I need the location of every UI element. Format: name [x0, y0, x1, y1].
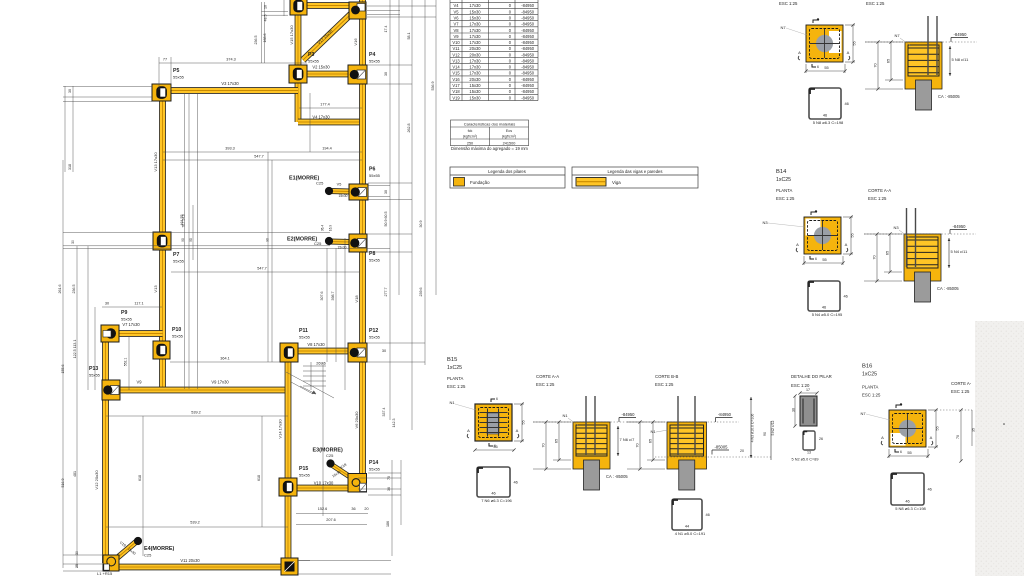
svg-text:DETALHE DO PILAR: DETALHE DO PILAR [791, 374, 832, 379]
svg-text:539.2: 539.2 [191, 411, 201, 415]
svg-text:ESC 1:25: ESC 1:25 [536, 382, 555, 387]
svg-text:261.6: 261.6 [58, 285, 62, 294]
svg-text:20: 20 [740, 449, 744, 453]
svg-text:30: 30 [71, 240, 75, 244]
svg-text:-84950: -84950 [718, 412, 732, 417]
svg-text:20x30: 20x30 [469, 77, 481, 82]
svg-text:318: 318 [68, 164, 72, 170]
svg-text:B16: B16 [862, 364, 872, 370]
svg-text:E1(MORRE): E1(MORRE) [289, 176, 319, 182]
svg-text:55: 55 [852, 41, 857, 45]
svg-text:618: 618 [138, 475, 142, 481]
svg-text:30: 30 [382, 349, 386, 353]
svg-text:-85005: -85005 [714, 445, 728, 450]
svg-text:V18: V18 [354, 295, 359, 303]
svg-text:5 N4 c/11: 5 N4 c/11 [951, 249, 969, 254]
svg-text:ESC 1:25: ESC 1:25 [447, 384, 466, 389]
svg-text:V6: V6 [453, 15, 459, 20]
svg-text:P4: P4 [369, 52, 375, 58]
svg-text:C25: C25 [314, 241, 322, 246]
svg-text:55: 55 [824, 65, 828, 70]
svg-text:17x30: 17x30 [469, 65, 481, 70]
svg-text:V7 17x30: V7 17x30 [122, 322, 140, 327]
svg-text:-84950: -84950 [521, 89, 534, 94]
svg-text:P6: P6 [369, 167, 375, 173]
svg-text:17x30: 17x30 [469, 22, 481, 27]
svg-text:A: A [847, 50, 850, 55]
svg-text:P11: P11 [299, 328, 308, 334]
svg-text:46: 46 [706, 512, 710, 517]
svg-text:P14: P14 [369, 460, 378, 466]
svg-text:15x30: 15x30 [469, 95, 481, 100]
svg-text:V16: V16 [452, 77, 460, 82]
svg-text:A: A [516, 428, 519, 433]
svg-text:5 N4 ø5.0 C=195: 5 N4 ø5.0 C=195 [812, 312, 843, 317]
svg-text:1xC25: 1xC25 [862, 372, 877, 378]
svg-text:-84950: -84950 [621, 412, 635, 417]
svg-text:1xC25: 1xC25 [776, 177, 791, 183]
svg-text:V2 15x30: V2 15x30 [312, 65, 330, 70]
svg-text:142.3: 142.3 [392, 419, 396, 428]
svg-text:90: 90 [189, 238, 193, 242]
svg-text:239.6: 239.6 [419, 288, 423, 297]
svg-text:337.4: 337.4 [382, 408, 386, 417]
svg-text:-84950: -84950 [952, 224, 966, 229]
svg-text:-84950: -84950 [521, 15, 534, 20]
svg-text:-84950: -84950 [521, 71, 534, 76]
svg-text:70: 70 [387, 476, 391, 480]
svg-text:V9 17x30: V9 17x30 [211, 380, 229, 385]
svg-text:30: 30 [384, 72, 388, 76]
svg-text:Ecs: Ecs [506, 129, 512, 133]
svg-text:V13: V13 [153, 285, 158, 293]
svg-text:36.4: 36.4 [321, 225, 325, 231]
svg-text:N7: N7 [780, 25, 786, 30]
svg-text:V11 20x30: V11 20x30 [180, 558, 200, 563]
svg-text:481: 481 [73, 471, 77, 477]
svg-text:17x30: 17x30 [469, 71, 481, 76]
svg-text:4 N1 ø5.0 C=191: 4 N1 ø5.0 C=191 [675, 531, 706, 536]
svg-text:55x55: 55x55 [299, 473, 311, 478]
svg-text:55x55: 55x55 [369, 467, 381, 472]
svg-text:539.2: 539.2 [190, 521, 200, 525]
svg-text:B14: B14 [776, 169, 787, 175]
svg-text:236.5: 236.5 [72, 285, 76, 294]
svg-text:307.6: 307.6 [320, 292, 324, 301]
svg-text:V18: V18 [452, 89, 460, 94]
svg-text:-84950: -84950 [521, 77, 534, 82]
svg-text:15x30: 15x30 [469, 9, 481, 14]
svg-text:618: 618 [257, 475, 261, 481]
svg-text:CA : -85005: CA : -85005 [937, 286, 959, 291]
svg-text:46: 46 [491, 491, 495, 496]
svg-text:48.5: 48.5 [264, 15, 268, 22]
svg-text:250: 250 [467, 141, 473, 145]
svg-text:55: 55 [907, 450, 911, 455]
svg-text:E4(MORRE): E4(MORRE) [144, 546, 174, 552]
svg-text:A: A [798, 50, 801, 55]
svg-text:269.6: 269.6 [316, 362, 326, 366]
svg-text:-84950: -84950 [521, 95, 534, 100]
svg-text:55x55: 55x55 [173, 75, 185, 80]
svg-text:58.1: 58.1 [407, 33, 411, 40]
svg-text:PLANTA: PLANTA [776, 188, 793, 193]
svg-text:152.6: 152.6 [318, 507, 328, 511]
svg-text:364.1: 364.1 [220, 357, 230, 361]
svg-text:90: 90 [763, 432, 767, 436]
svg-text:55x55: 55x55 [369, 173, 381, 178]
svg-text:CA : -85005: CA : -85005 [606, 474, 628, 479]
svg-text:N1: N1 [562, 413, 568, 418]
svg-text:V4 17x30: V4 17x30 [312, 115, 330, 120]
svg-text:122.5 113.1: 122.5 113.1 [73, 340, 77, 359]
svg-text:V8 17x30: V8 17x30 [307, 342, 325, 347]
svg-text:15x30: 15x30 [339, 194, 348, 198]
svg-text:-84950: -84950 [521, 52, 534, 57]
svg-text:V8: V8 [453, 28, 459, 33]
svg-text:ESC 1:25: ESC 1:25 [776, 196, 795, 201]
svg-text:P10: P10 [172, 327, 181, 333]
svg-text:26: 26 [819, 437, 823, 441]
svg-text:V12 20x30: V12 20x30 [94, 470, 99, 490]
svg-text:Legenda das vigas e paredes: Legenda das vigas e paredes [608, 169, 663, 174]
svg-text:15x30: 15x30 [338, 246, 347, 250]
svg-text:17: 17 [806, 388, 810, 392]
svg-text:46: 46 [845, 101, 849, 106]
svg-text:55x55: 55x55 [369, 258, 381, 263]
svg-text:46: 46 [822, 305, 826, 310]
svg-text:55x55: 55x55 [299, 335, 311, 340]
svg-text:15x30: 15x30 [469, 83, 481, 88]
svg-text:B15: B15 [447, 357, 457, 363]
svg-text:C25: C25 [316, 181, 324, 186]
svg-text:155.6: 155.6 [61, 365, 65, 374]
svg-text:A: A [881, 435, 884, 440]
svg-text:20x30: 20x30 [469, 52, 481, 57]
svg-text:ESC 1:25: ESC 1:25 [779, 1, 798, 6]
svg-text:A: A [796, 242, 799, 247]
svg-text:30: 30 [384, 190, 388, 194]
svg-text:V10 17x30: V10 17x30 [314, 481, 334, 486]
svg-text:25: 25 [75, 564, 79, 568]
svg-text:P5: P5 [173, 68, 179, 74]
svg-text:398.7: 398.7 [331, 292, 335, 301]
svg-text:N1: N1 [449, 400, 455, 405]
svg-text:536.9: 536.9 [431, 82, 435, 91]
svg-text:6: 6 [900, 450, 902, 454]
svg-text:90: 90 [181, 238, 185, 242]
svg-text:A: A [845, 242, 848, 247]
svg-text:Viga: Viga [612, 180, 621, 185]
svg-text:P13: P13 [89, 366, 98, 372]
svg-text:76.7 54.6: 76.7 54.6 [182, 214, 186, 228]
svg-text:30: 30 [68, 89, 72, 93]
svg-text:V9: V9 [136, 380, 142, 385]
svg-text:7 N6 ø6.3 C=196: 7 N6 ø6.3 C=196 [481, 498, 512, 503]
svg-text:V12: V12 [452, 52, 460, 57]
svg-text:5 N2 ø5.0 C=89: 5 N2 ø5.0 C=89 [792, 458, 819, 462]
svg-text:V13: V13 [452, 58, 460, 63]
svg-text:P9: P9 [121, 310, 127, 316]
svg-text:30: 30 [105, 302, 109, 306]
svg-text:V10: V10 [452, 40, 460, 45]
svg-text:7 N6 c/7: 7 N6 c/7 [620, 437, 636, 442]
svg-text:36: 36 [387, 487, 391, 491]
svg-text:4 N3 ø10.0 C=106: 4 N3 ø10.0 C=106 [751, 414, 755, 443]
svg-text:P7: P7 [173, 252, 179, 258]
svg-text:1xC25: 1xC25 [447, 365, 462, 371]
svg-text:55: 55 [850, 233, 855, 237]
svg-text:V17: V17 [452, 83, 460, 88]
svg-text:547.7: 547.7 [254, 155, 264, 159]
svg-text:10: 10 [264, 5, 268, 9]
svg-text:55x55: 55x55 [121, 317, 133, 322]
svg-text:-84950: -84950 [521, 9, 534, 14]
svg-text:55x55: 55x55 [369, 59, 381, 64]
svg-text:V19: V19 [452, 95, 460, 100]
svg-text:V11: V11 [453, 46, 461, 51]
svg-text:17x30: 17x30 [469, 40, 481, 45]
svg-text:70: 70 [956, 435, 960, 439]
svg-text:55: 55 [935, 426, 940, 430]
svg-text:Fundação: Fundação [470, 180, 490, 185]
svg-text:V3 17x30: V3 17x30 [221, 81, 239, 86]
svg-text:30: 30 [75, 551, 79, 555]
svg-text:V9: V9 [453, 34, 459, 39]
svg-text:5 N8 ø6.3 C=198: 5 N8 ø6.3 C=198 [895, 506, 926, 511]
svg-text:374.3: 374.3 [226, 58, 236, 62]
svg-text:CORTE A-A: CORTE A-A [868, 188, 891, 193]
svg-text:55x55: 55x55 [369, 335, 381, 340]
svg-text:207.6: 207.6 [326, 518, 336, 522]
svg-text:36: 36 [351, 507, 355, 511]
svg-text:Características dos materiais: Características dos materiais [464, 121, 516, 126]
svg-text:65: 65 [554, 439, 559, 443]
svg-text:ESC 1:25: ESC 1:25 [868, 196, 887, 201]
svg-text:393.3: 393.3 [225, 147, 235, 151]
svg-text:117.1: 117.1 [134, 302, 143, 306]
svg-text:55: 55 [521, 420, 526, 424]
svg-text:6: 6 [815, 257, 817, 261]
svg-text:N3: N3 [893, 225, 899, 230]
svg-text:ESC 1:25: ESC 1:25 [951, 389, 970, 394]
svg-text:ESC 1:25: ESC 1:25 [866, 1, 885, 6]
svg-text:N7: N7 [894, 33, 900, 38]
svg-text:262.8: 262.8 [407, 124, 411, 133]
svg-text:35: 35 [972, 428, 976, 432]
svg-text:V15: V15 [452, 71, 460, 76]
svg-text:13: 13 [807, 451, 811, 455]
svg-text:168.6: 168.6 [263, 34, 267, 43]
svg-text:5 N2 c/12: 5 N2 c/12 [771, 420, 775, 435]
svg-text:-84950: -84950 [521, 34, 534, 39]
svg-text:55x55: 55x55 [308, 59, 320, 64]
svg-text:-84950: -84950 [521, 65, 534, 70]
svg-text:15x30: 15x30 [469, 15, 481, 20]
svg-text:(kgf/cm²): (kgf/cm²) [463, 135, 478, 139]
svg-text:16.9: 16.9 [329, 225, 333, 231]
svg-text:55x55: 55x55 [172, 334, 184, 339]
svg-text:6: 6 [817, 65, 819, 69]
svg-text:PLANTA: PLANTA [447, 376, 464, 381]
svg-text:Legenda dos pilares: Legenda dos pilares [488, 169, 526, 174]
svg-text:CORTE A-: CORTE A- [951, 381, 972, 386]
svg-text:-84950: -84950 [521, 58, 534, 63]
svg-text:A: A [930, 435, 933, 440]
svg-text:547.7: 547.7 [257, 267, 267, 271]
svg-text:20x30: 20x30 [469, 46, 481, 51]
svg-text:fck: fck [468, 129, 473, 133]
svg-text:46: 46 [928, 487, 932, 492]
svg-text:5 N8 ø6.3 C=198: 5 N8 ø6.3 C=198 [813, 120, 844, 125]
svg-text:17x30: 17x30 [469, 28, 481, 33]
svg-text:65: 65 [648, 439, 653, 443]
svg-text:17x30: 17x30 [469, 34, 481, 39]
svg-text:46: 46 [514, 480, 518, 485]
svg-text:277.7: 277.7 [384, 288, 388, 297]
svg-text:C25: C25 [144, 553, 152, 558]
svg-text:Dimensão máxima do agregado =: Dimensão máxima do agregado = 19 mm [451, 146, 528, 151]
svg-text:241500: 241500 [503, 141, 516, 145]
svg-text:77: 77 [163, 58, 167, 62]
svg-text:30.9: 30.9 [419, 221, 423, 228]
svg-text:ESC 1:25: ESC 1:25 [655, 382, 674, 387]
svg-text:186: 186 [386, 521, 390, 527]
svg-text:55x55: 55x55 [173, 259, 185, 264]
svg-text:6: 6 [494, 444, 496, 448]
svg-text:30: 30 [792, 408, 796, 412]
svg-text:V16: V16 [353, 38, 358, 46]
svg-text:ESC 1:25: ESC 1:25 [862, 393, 881, 398]
svg-text:516.9: 516.9 [61, 479, 65, 488]
svg-text:N7: N7 [860, 411, 866, 416]
svg-text:-84950: -84950 [521, 40, 534, 45]
svg-text:55: 55 [822, 257, 826, 262]
svg-text:17.4: 17.4 [384, 26, 388, 33]
svg-text:65: 65 [886, 59, 891, 63]
svg-text:CORTE B-B: CORTE B-B [655, 374, 678, 379]
svg-text:236.5: 236.5 [254, 36, 258, 45]
svg-text:V13 17x30: V13 17x30 [153, 152, 158, 172]
svg-text:E2(MORRE): E2(MORRE) [287, 237, 317, 243]
svg-text:46: 46 [844, 294, 848, 299]
svg-text:15x30: 15x30 [469, 89, 481, 94]
svg-text:90: 90 [266, 238, 270, 242]
svg-text:L1 +R15: L1 +R15 [97, 571, 113, 576]
svg-text:N1: N1 [650, 429, 656, 434]
svg-text:V6 20x30: V6 20x30 [354, 411, 359, 429]
svg-text:50.9 60.5: 50.9 60.5 [384, 212, 388, 227]
svg-text:177.4: 177.4 [320, 103, 330, 107]
svg-text:-84950: -84950 [521, 3, 534, 8]
svg-text:194.4: 194.4 [322, 147, 332, 151]
svg-text:20: 20 [364, 507, 368, 511]
svg-text:46: 46 [905, 499, 909, 504]
svg-text:V5: V5 [337, 183, 342, 187]
svg-text:C25: C25 [326, 453, 334, 458]
svg-text:CORTE A-A: CORTE A-A [536, 374, 559, 379]
svg-text:552.1: 552.1 [124, 358, 128, 367]
svg-text:P12: P12 [369, 328, 378, 334]
svg-text:P15: P15 [299, 466, 308, 472]
svg-text:A: A [467, 428, 470, 433]
svg-text:-84950: -84950 [521, 83, 534, 88]
svg-text:46: 46 [823, 113, 827, 118]
svg-text:V7: V7 [453, 22, 459, 27]
svg-text:(kgf/cm²): (kgf/cm²) [502, 135, 517, 139]
svg-text:6: 6 [496, 397, 498, 401]
svg-text:17x30: 17x30 [469, 58, 481, 63]
svg-text:V14 17x30: V14 17x30 [278, 419, 283, 439]
svg-text:-84950: -84950 [953, 32, 967, 37]
svg-text:PLANTA: PLANTA [862, 385, 879, 390]
svg-text:-84950: -84950 [521, 22, 534, 27]
svg-text:N3: N3 [762, 220, 768, 225]
svg-text:V4: V4 [453, 3, 459, 8]
svg-text:P3: P3 [308, 52, 314, 58]
svg-text:5 N8 c/11: 5 N8 c/11 [952, 57, 970, 62]
svg-text:V14: V14 [452, 65, 460, 70]
svg-text:65: 65 [885, 251, 890, 255]
svg-text:-84950: -84950 [521, 46, 534, 51]
svg-text:V5: V5 [453, 9, 459, 14]
svg-text:-84950: -84950 [521, 28, 534, 33]
svg-text:V15 17x30: V15 17x30 [289, 25, 294, 45]
svg-text:CA : -85005: CA : -85005 [938, 94, 960, 99]
svg-text:17x30: 17x30 [469, 3, 481, 8]
